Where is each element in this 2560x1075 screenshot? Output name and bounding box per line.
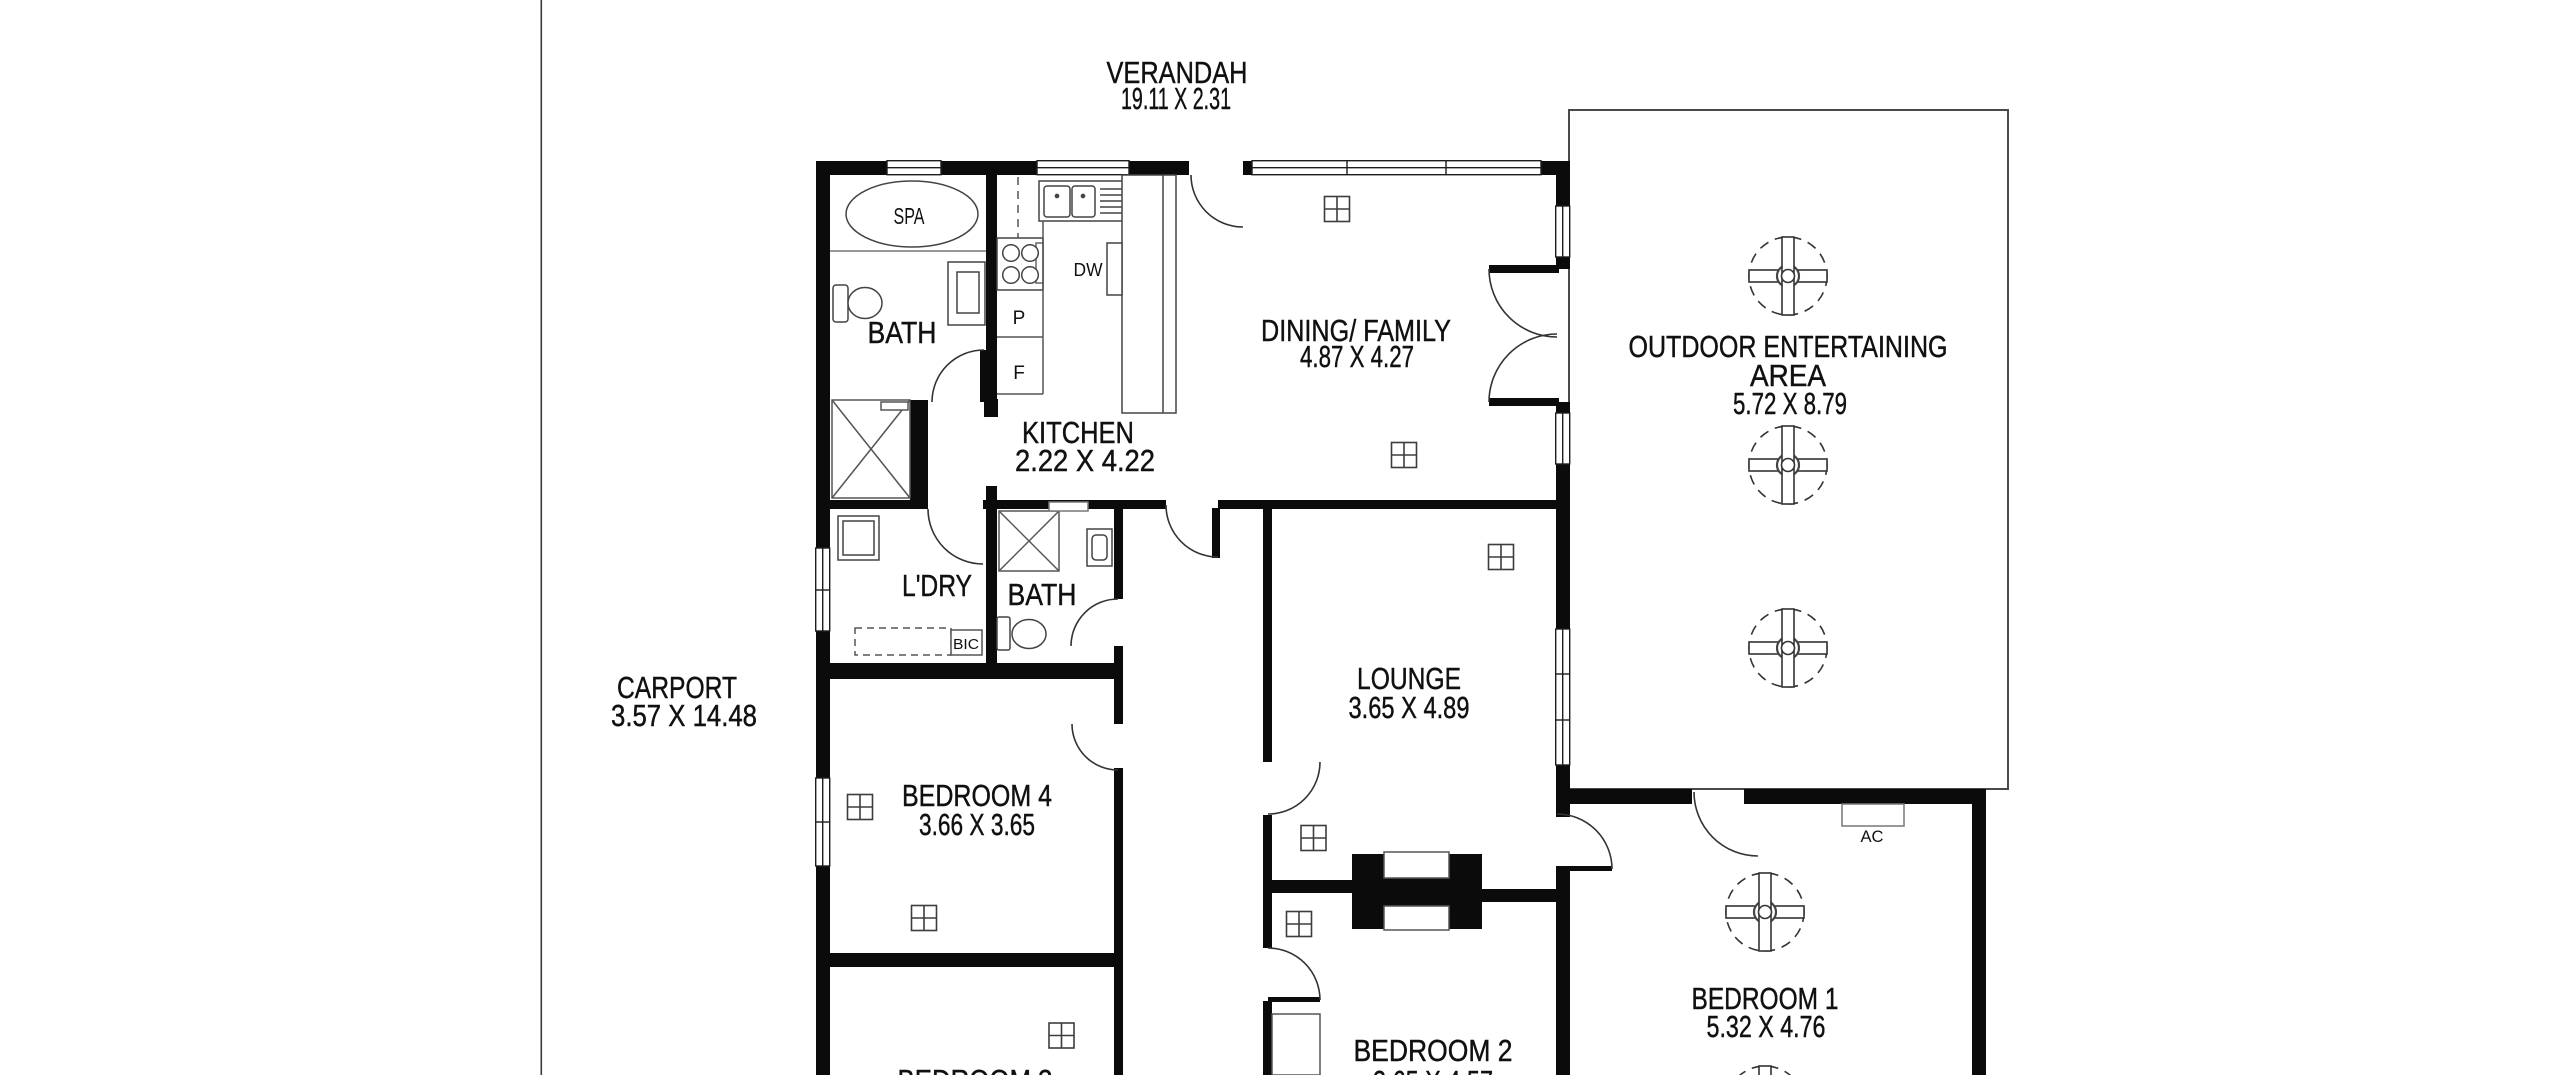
svg-text:3.65 X 4.57: 3.65 X 4.57 — [1373, 1064, 1493, 1075]
svg-text:5.32 X 4.76: 5.32 X 4.76 — [1707, 1009, 1826, 1044]
svg-text:3.65 X 4.89: 3.65 X 4.89 — [1349, 690, 1470, 725]
svg-text:SPA: SPA — [894, 203, 925, 229]
svg-text:19.11 X 2.31: 19.11 X 2.31 — [1121, 81, 1231, 116]
svg-text:F: F — [1013, 363, 1025, 384]
svg-text:BEDROOM 3: BEDROOM 3 — [898, 1063, 1053, 1075]
svg-text:2.22 X 4.22: 2.22 X 4.22 — [1015, 443, 1155, 478]
svg-text:L'DRY: L'DRY — [902, 568, 972, 603]
svg-text:P: P — [1013, 308, 1026, 329]
svg-text:BIC: BIC — [953, 636, 979, 653]
svg-text:AC: AC — [1861, 827, 1884, 846]
svg-text:BATH: BATH — [868, 315, 937, 350]
svg-text:3.66 X 3.65: 3.66 X 3.65 — [919, 807, 1035, 842]
svg-text:BEDROOM 2: BEDROOM 2 — [1354, 1033, 1513, 1068]
svg-text:3.57 X 14.48: 3.57 X 14.48 — [611, 698, 757, 733]
svg-text:5.72 X 8.79: 5.72 X 8.79 — [1733, 386, 1847, 421]
svg-text:BATH: BATH — [1008, 577, 1077, 612]
svg-text:4.87 X 4.27: 4.87 X 4.27 — [1300, 339, 1414, 374]
svg-text:DW: DW — [1074, 260, 1103, 280]
